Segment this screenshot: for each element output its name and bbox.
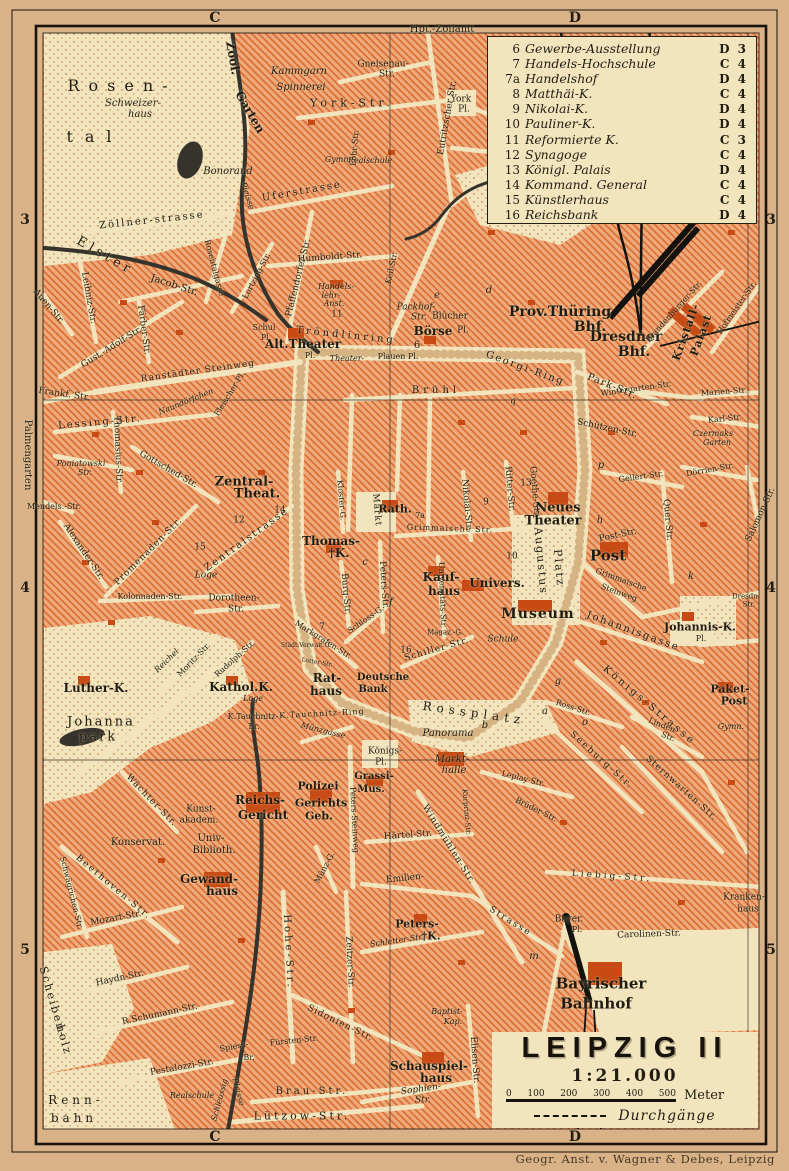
legend-number: 13 bbox=[494, 163, 525, 177]
legend-row: 12SynagogeC 4 bbox=[494, 147, 748, 162]
legend-name: Handels-Hochschule bbox=[525, 56, 718, 71]
legend-name: Pauliner-K. bbox=[525, 116, 718, 131]
legend-name: Reformierte K. bbox=[525, 132, 718, 147]
legend-grid-ref: D 4 bbox=[718, 102, 748, 116]
scale-bar: 0100200300400500 Meter bbox=[506, 1089, 752, 1102]
legend-grid-ref: C 4 bbox=[718, 57, 748, 71]
legend-name: Nikolai-K. bbox=[525, 101, 718, 116]
legend-name: Gewerbe-Ausstellung bbox=[525, 41, 718, 56]
legend-row: 14Kommand. GeneralC 4 bbox=[494, 177, 748, 192]
legend-row: 9Nikolai-K.D 4 bbox=[494, 101, 748, 116]
legend-name: Matthäi-K. bbox=[525, 86, 718, 101]
legend-grid-ref: D 4 bbox=[718, 163, 748, 177]
legend-box: 6Gewerbe-AusstellungD 37Handels-Hochschu… bbox=[487, 36, 757, 224]
scale-tick: 0 bbox=[506, 1090, 512, 1099]
map-scale-ratio: 1:21.000 bbox=[492, 1066, 758, 1086]
legend-grid-ref: C 4 bbox=[718, 178, 748, 192]
legend-row: 16ReichsbankD 4 bbox=[494, 207, 748, 222]
scale-rule bbox=[506, 1099, 676, 1102]
legend-grid-ref: C 4 bbox=[718, 87, 748, 101]
legend-row: 8Matthäi-K.C 4 bbox=[494, 86, 748, 101]
scale-tick: 300 bbox=[593, 1090, 610, 1099]
legend-number: 9 bbox=[494, 102, 525, 116]
legend-grid-ref: D 4 bbox=[718, 117, 748, 131]
legend-row: 6Gewerbe-AusstellungD 3 bbox=[494, 41, 748, 56]
legend-name: Reichsbank bbox=[525, 207, 718, 222]
scale-unit: Meter bbox=[684, 1089, 724, 1102]
legend-name: Handelshof bbox=[525, 71, 718, 86]
legend-number: 7a bbox=[494, 72, 525, 86]
legend-grid-ref: C 3 bbox=[718, 133, 748, 147]
scale-tick: 200 bbox=[560, 1090, 577, 1099]
legend-number: 12 bbox=[494, 148, 525, 162]
legend-name: Königl. Palais bbox=[525, 162, 718, 177]
passages-label: Durchgänge bbox=[618, 1108, 715, 1124]
scale-tick: 500 bbox=[659, 1090, 676, 1099]
legend-grid-ref: D 3 bbox=[718, 42, 748, 56]
legend-number: 15 bbox=[494, 193, 525, 207]
map-sheet: Hpt.-ZollamtRosen-talSchweizer-hausBonor… bbox=[0, 0, 789, 1171]
legend-grid-ref: D 4 bbox=[718, 72, 748, 86]
scale-ticks: 0100200300400500 bbox=[506, 1090, 676, 1099]
legend-name: Synagoge bbox=[525, 147, 718, 162]
legend-row: 15KünstlerhausC 4 bbox=[494, 192, 748, 207]
legend-number: 6 bbox=[494, 42, 525, 56]
legend-row: 11Reformierte K.C 3 bbox=[494, 132, 748, 147]
legend-number: 10 bbox=[494, 117, 525, 131]
legend-row: 7aHandelshofD 4 bbox=[494, 71, 748, 86]
scale-tick: 100 bbox=[527, 1090, 544, 1099]
passages-dash-icon bbox=[534, 1115, 606, 1117]
legend-name: Künstlerhaus bbox=[525, 192, 718, 207]
credit-line: Geogr. Anst. v. Wagner & Debes, Leipzig bbox=[430, 1152, 775, 1166]
legend-number: 7 bbox=[494, 57, 525, 71]
legend-name: Kommand. General bbox=[525, 177, 718, 192]
legend-rows: 6Gewerbe-AusstellungD 37Handels-Hochschu… bbox=[494, 41, 748, 222]
legend-row: 7Handels-HochschuleC 4 bbox=[494, 56, 748, 71]
passages-legend: Durchgänge bbox=[492, 1108, 758, 1124]
title-block: LEIPZIG II 1:21.000 0100200300400500 Met… bbox=[492, 1032, 758, 1128]
legend-grid-ref: C 4 bbox=[718, 193, 748, 207]
legend-number: 14 bbox=[494, 178, 525, 192]
legend-row: 10Pauliner-K.D 4 bbox=[494, 116, 748, 131]
legend-number: 16 bbox=[494, 208, 525, 222]
legend-grid-ref: D 4 bbox=[718, 208, 748, 222]
scale-tick: 400 bbox=[626, 1090, 643, 1099]
legend-number: 11 bbox=[494, 133, 525, 147]
legend-row: 13Königl. PalaisD 4 bbox=[494, 162, 748, 177]
legend-number: 8 bbox=[494, 87, 525, 101]
legend-grid-ref: C 4 bbox=[718, 148, 748, 162]
map-title: LEIPZIG II bbox=[492, 1032, 758, 1065]
